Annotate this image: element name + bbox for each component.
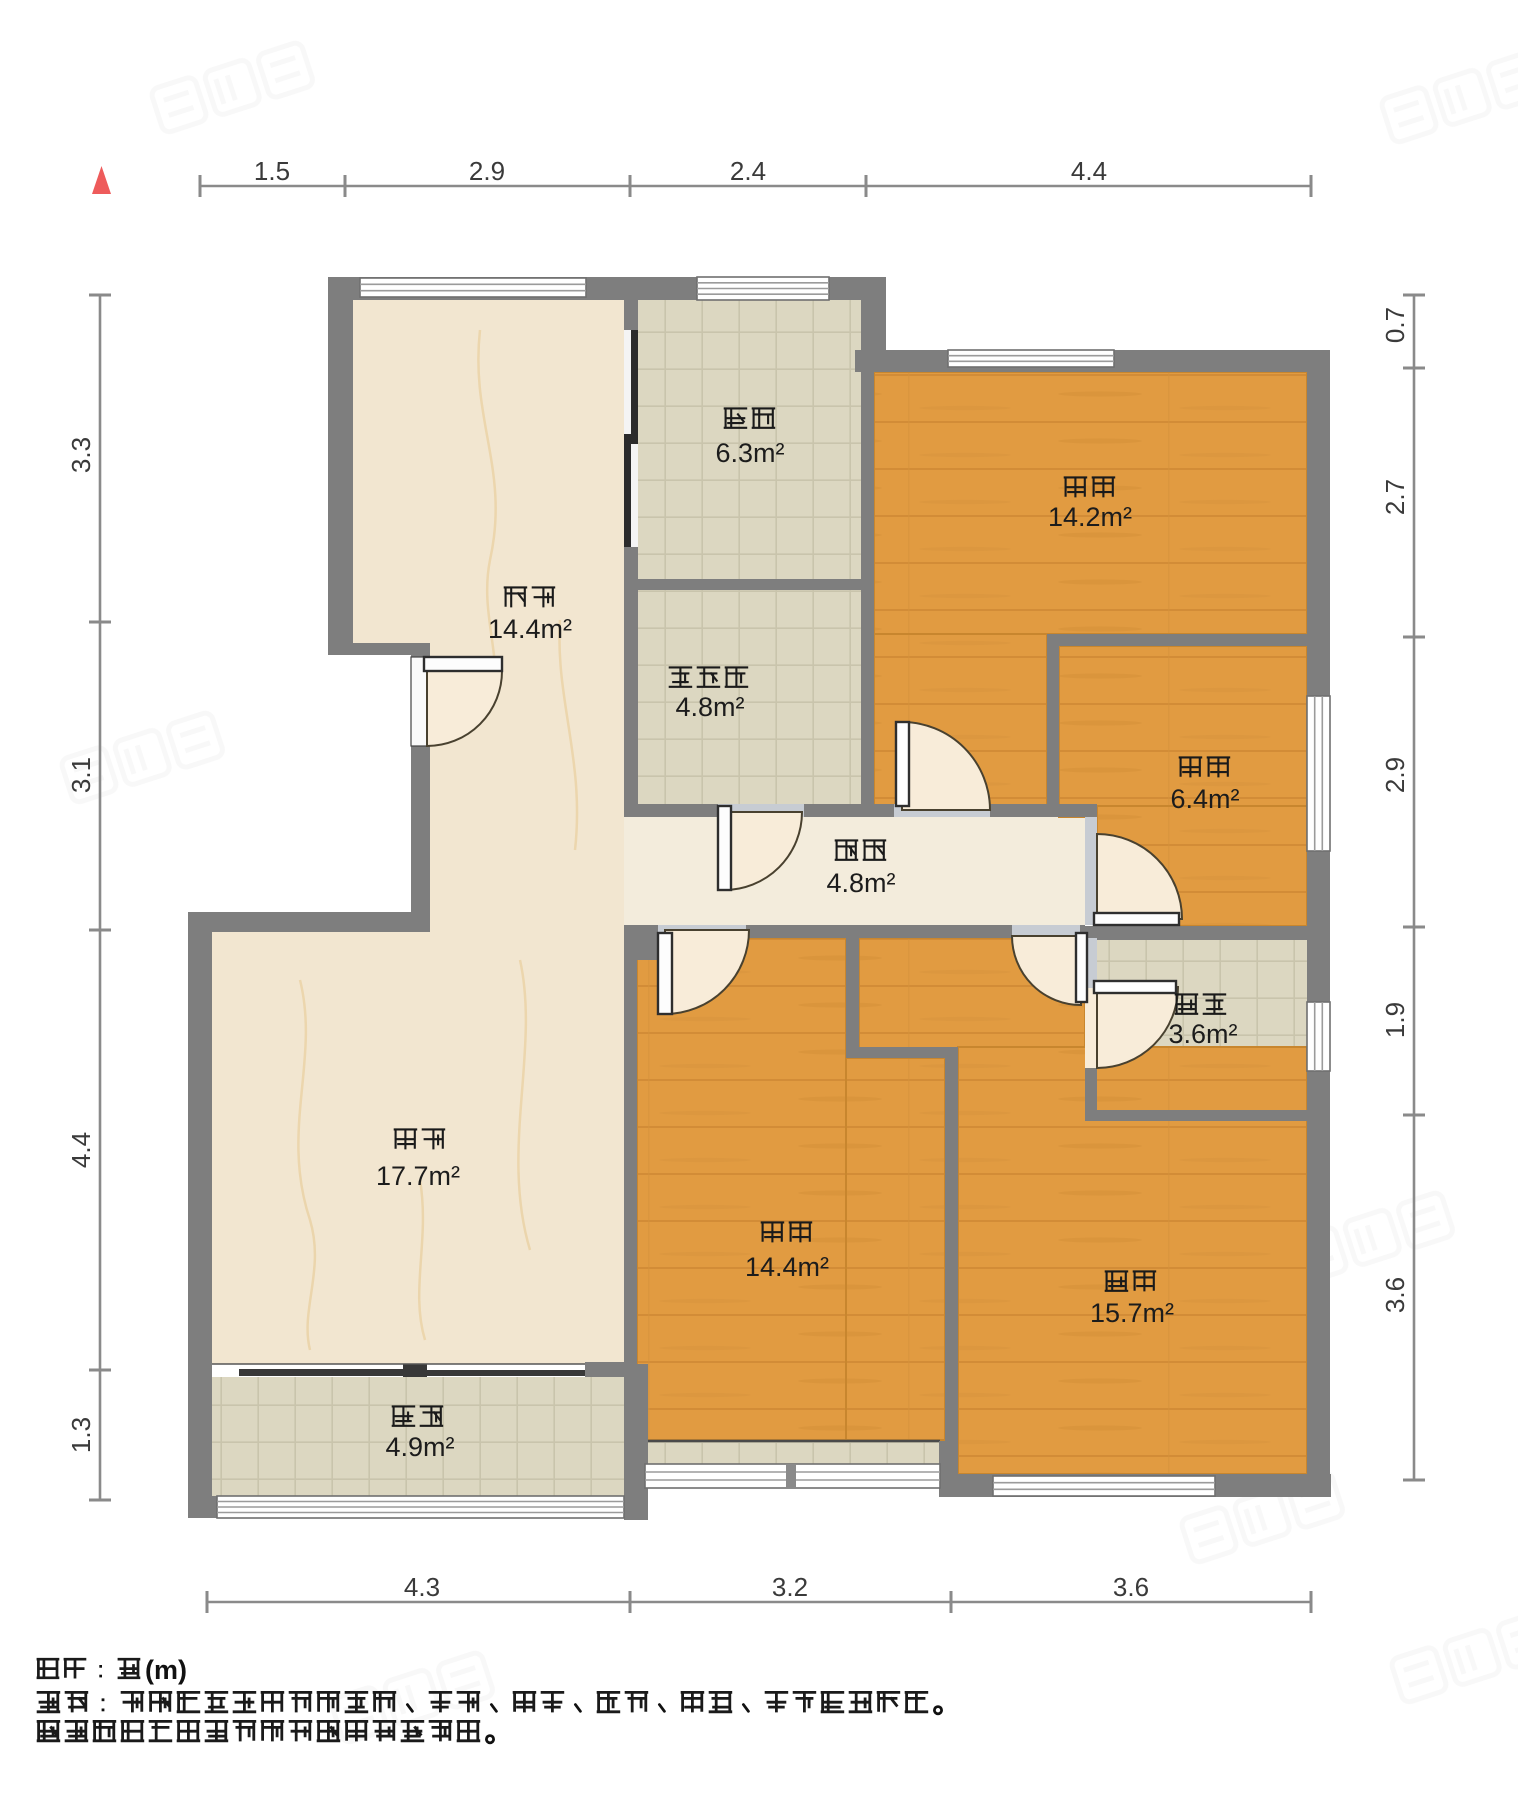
svg-text:14.2m²: 14.2m² (1048, 502, 1132, 532)
svg-text:14.4m²: 14.4m² (745, 1252, 829, 1282)
svg-text:4.9m²: 4.9m² (385, 1432, 454, 1462)
svg-text:14.4m²: 14.4m² (488, 614, 572, 644)
svg-text:4.4: 4.4 (1071, 156, 1107, 186)
svg-text:6.4m²: 6.4m² (1170, 784, 1239, 814)
svg-text:4.4: 4.4 (66, 1132, 96, 1168)
svg-text:2.9: 2.9 (469, 156, 505, 186)
svg-text:3.2: 3.2 (772, 1572, 808, 1602)
svg-text:3.3: 3.3 (66, 437, 96, 473)
svg-text:0.7: 0.7 (1380, 307, 1410, 343)
svg-text:6.3m²: 6.3m² (715, 438, 784, 468)
svg-text:2.7: 2.7 (1380, 479, 1410, 515)
svg-text:4.8m²: 4.8m² (826, 868, 895, 898)
svg-text:(m): (m) (145, 1655, 187, 1685)
svg-text:1.3: 1.3 (66, 1417, 96, 1453)
svg-text:3.1: 3.1 (66, 757, 96, 793)
svg-text:1.5: 1.5 (254, 156, 290, 186)
svg-text:3.6m²: 3.6m² (1168, 1019, 1237, 1049)
svg-text:3.6: 3.6 (1380, 1277, 1410, 1313)
svg-text:4.3: 4.3 (404, 1572, 440, 1602)
svg-text:17.7m²: 17.7m² (376, 1161, 460, 1191)
svg-text:2.4: 2.4 (730, 156, 766, 186)
svg-text:3.6: 3.6 (1113, 1572, 1149, 1602)
svg-text:1.9: 1.9 (1380, 1002, 1410, 1038)
svg-text:15.7m²: 15.7m² (1090, 1298, 1174, 1328)
svg-text:4.8m²: 4.8m² (675, 692, 744, 722)
svg-text:2.9: 2.9 (1380, 757, 1410, 793)
